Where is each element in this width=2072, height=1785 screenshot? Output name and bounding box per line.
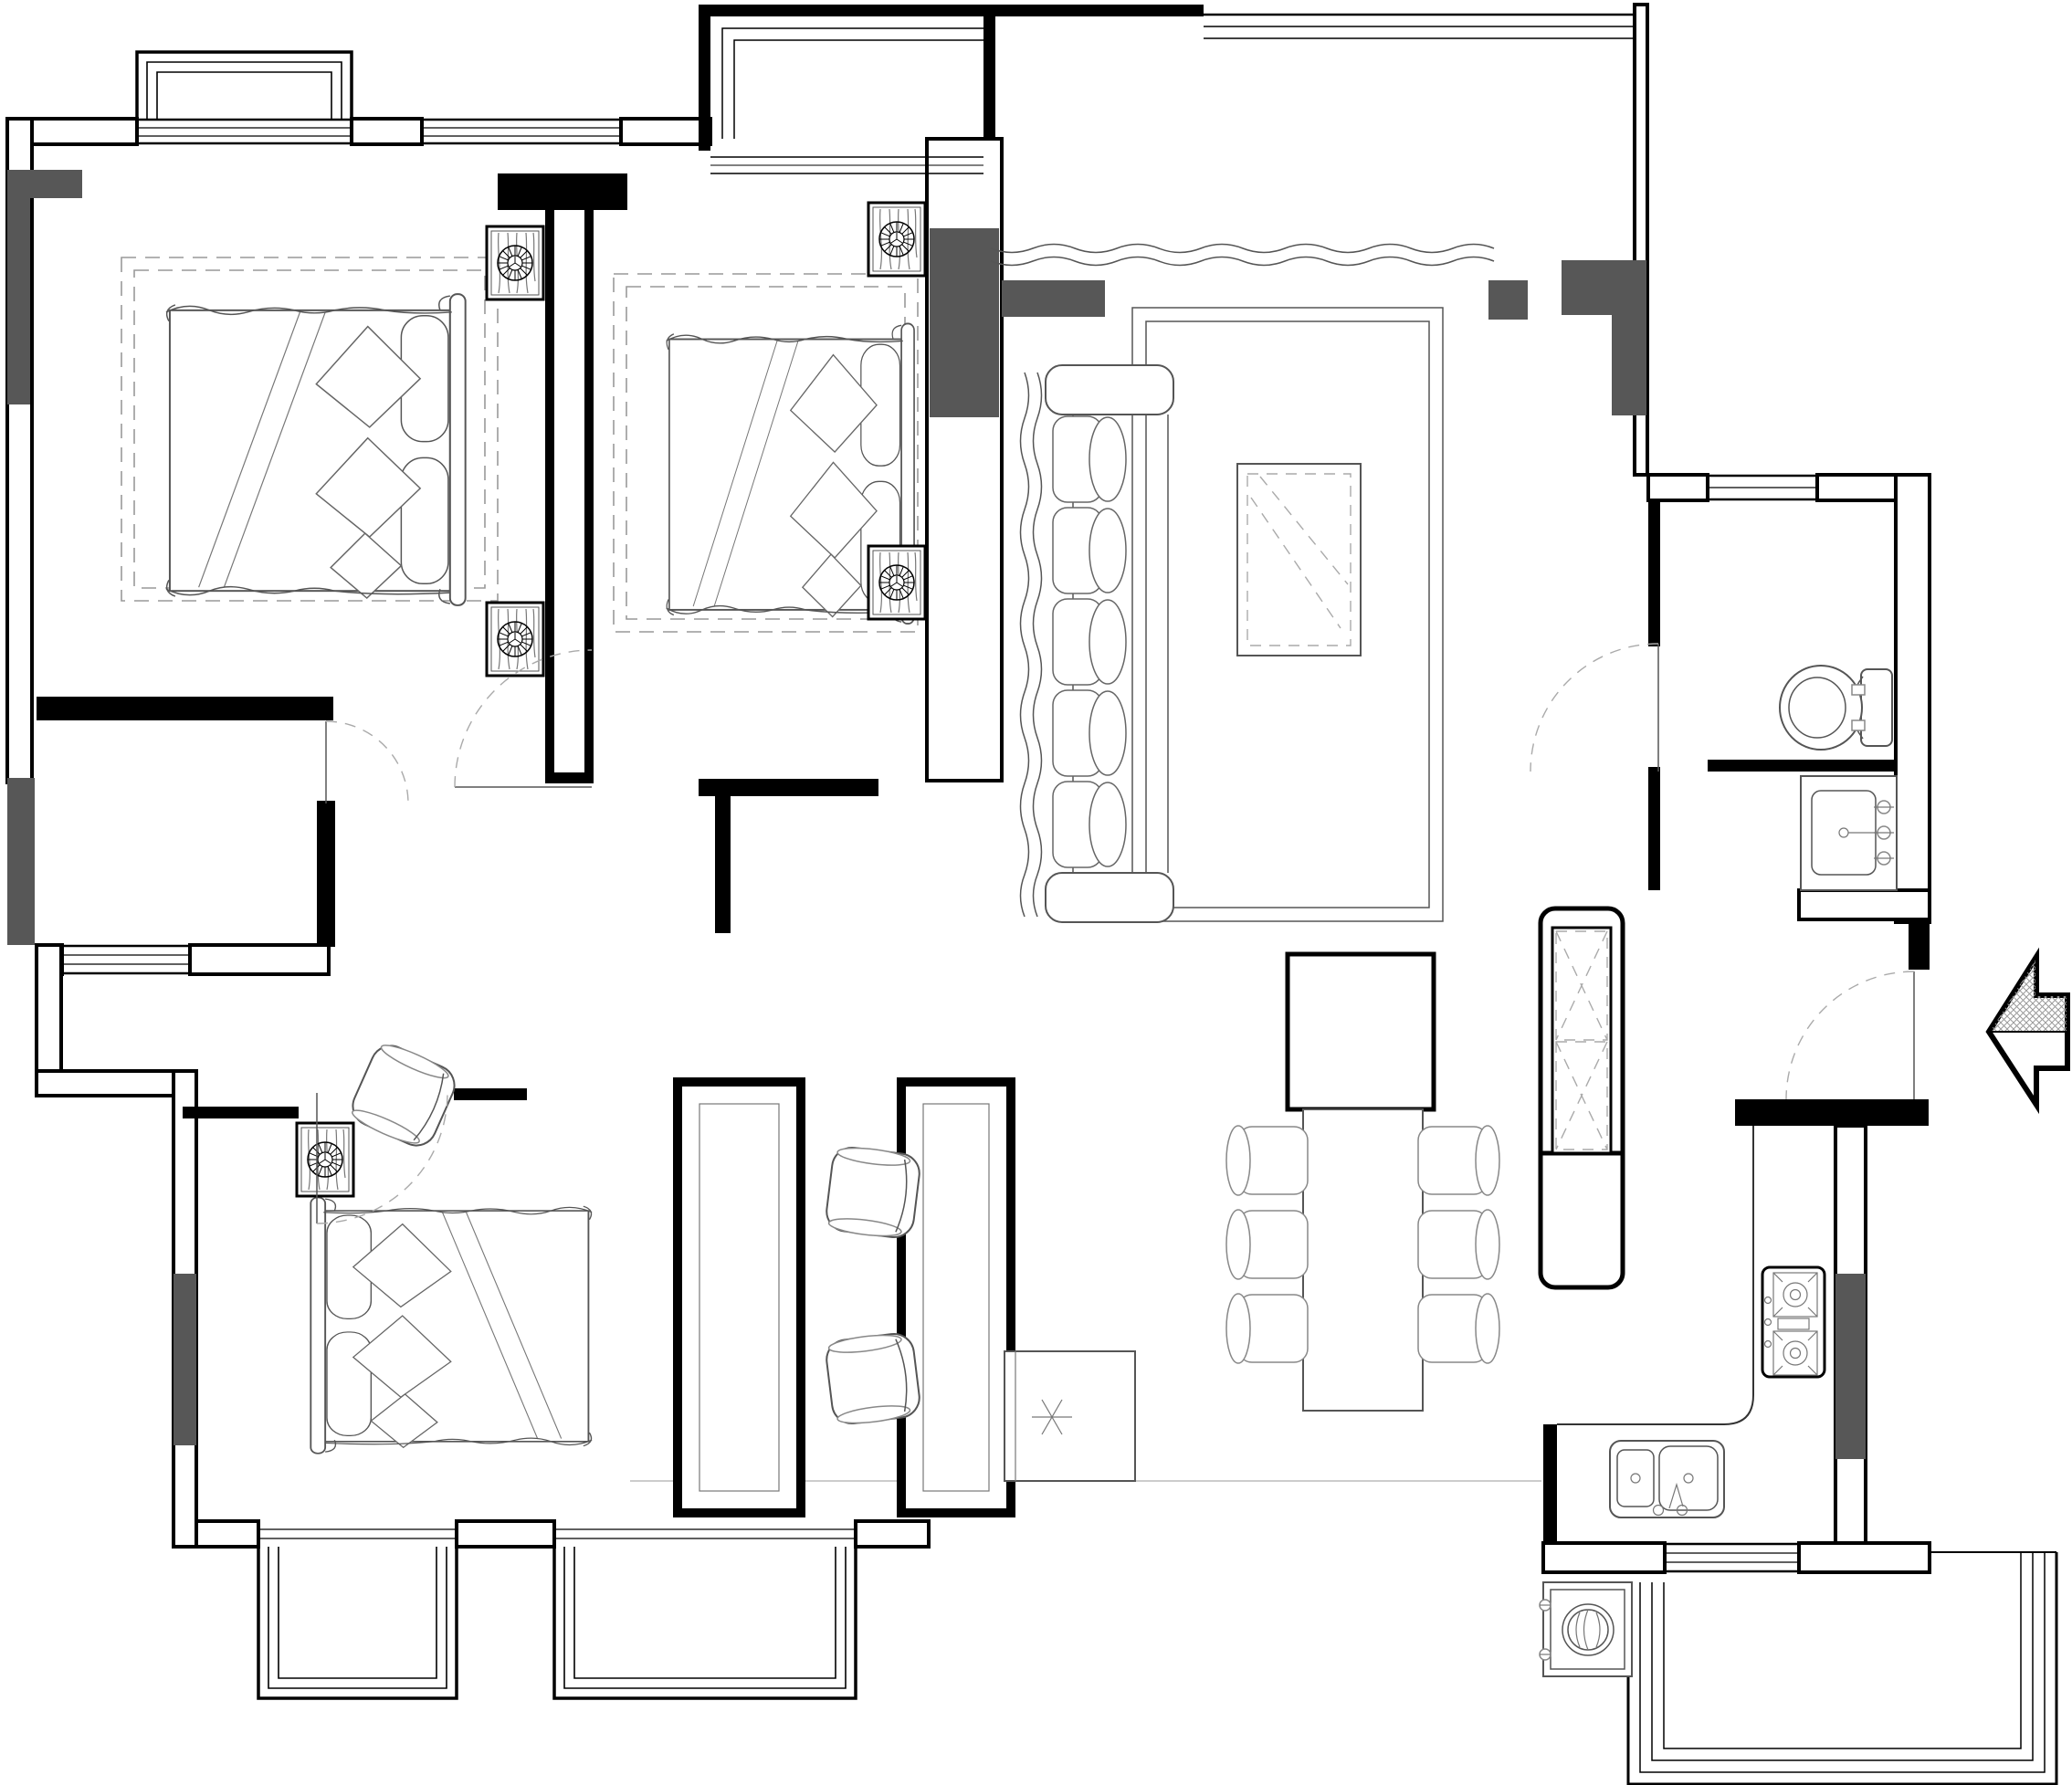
walls-solid-shape [545,772,594,783]
wall-balcony-top [699,5,1204,16]
furniture-shape [1852,720,1865,730]
wall [37,1071,183,1096]
poche [1002,280,1105,317]
closet-partition-right [901,1082,1011,1513]
dining-chair [1418,1126,1499,1195]
windows-and-railings-shape [1665,1553,1799,1562]
poche [7,778,35,945]
walls-solid-shape [1735,1099,1929,1126]
windows-and-railings-shape [258,1529,457,1538]
windows-and-railings-shape [1640,1552,2045,1772]
lounge-chair [825,1145,922,1241]
floor-plan: Apartment floor plan drawing (black and … [0,0,2072,1785]
wall [1799,1543,1930,1572]
sofa [1046,365,1173,922]
living-room-rug [1132,308,1443,921]
curtains-shape [1034,373,1042,917]
walls-solid-shape [699,5,710,151]
floor-plan-svg [0,0,2072,1785]
poche [1612,260,1646,415]
sideboard-cabinet [1288,954,1434,1109]
window-top [422,119,621,144]
lounge-chair [825,1331,922,1427]
walls-solid-shape [699,779,878,796]
window-kitchen [1665,1544,1799,1571]
windows-and-railings-shape [137,128,352,136]
wall [621,119,710,144]
walls-solid-shape [1543,1424,1557,1543]
wall [1543,1543,1665,1572]
fan-coil-unit [868,203,925,276]
walls-solid-shape [1708,760,1896,772]
bed-bedroom-1 [166,294,466,605]
walls-solid-shape [584,210,594,783]
walls-solid-shape [37,697,333,720]
furniture-shape [1852,685,1865,695]
service-balcony-railing [1628,1552,2056,1784]
windows-and-railings-shape [137,120,352,143]
curtain-living-room [991,245,1494,253]
walls-solid-shape [545,210,554,783]
fan-coil-unit [487,226,543,299]
poche [1488,280,1528,320]
armchair-bedroom-3 [346,1039,461,1153]
washing-machine [1543,1582,1632,1676]
walls-solid-shape [317,801,335,947]
ac-outdoor-unit [1004,1351,1135,1481]
bay-window-bottom-middle [554,1547,856,1698]
walls-solid-shape [1648,767,1660,890]
closet-partition-left [678,1082,801,1513]
dining-table [1303,1109,1423,1411]
wall [1799,890,1930,919]
poche [1562,260,1616,315]
gas-stove [1762,1267,1825,1377]
bay-window-bottom-left [258,1547,457,1698]
windows-and-railings-shape [62,955,190,964]
windows-and-railings-shape [422,128,621,136]
entry-arrow [1989,957,2067,1105]
curtains-shape [991,257,1494,266]
windows-and-railings-shape [554,1529,856,1538]
dining-chair [1226,1126,1308,1195]
wall [1817,475,1896,500]
poche [1835,1274,1866,1459]
walls-solid-shape [1648,500,1660,646]
poche [930,228,999,417]
wall [457,1521,554,1547]
windows-and-railings-shape [268,1547,447,1688]
walls-solid-shape [715,796,731,933]
fan-coil-unit [868,546,925,619]
fan-coil-unit [487,603,543,676]
dining-chair [1418,1210,1499,1279]
wall [352,119,422,144]
poche [174,1274,196,1445]
curtain-side [1021,373,1029,917]
dining-chair [1418,1294,1499,1363]
dining-chair [1226,1210,1308,1279]
wall [1648,475,1708,500]
windows-and-railings-shape [1204,26,1635,38]
furniture-shape [1552,928,1611,1153]
poche [7,170,82,198]
wall [1896,475,1930,922]
windows-and-railings-shape [564,1547,846,1688]
balcony-inner-line [722,28,983,139]
coffee-table [1237,464,1361,656]
door-arc-entry [1786,971,1914,1099]
walls-solid-shape [183,1107,299,1118]
window-study [62,946,190,973]
wall [190,945,329,974]
toilet [1861,669,1892,746]
walls-solid-shape [983,16,995,139]
door-arc-bathroom [1530,644,1658,772]
windows-and-railings-shape [157,72,331,119]
furniture [166,294,1897,1676]
fan-coil-unit [297,1123,353,1196]
walls-solid-shape [1909,922,1930,970]
dining-chair [1226,1294,1308,1363]
wall-header [498,173,627,210]
windows-and-railings-shape [147,62,342,119]
bed-bedroom-3 [310,1198,592,1454]
walls-solid-shape [454,1088,527,1100]
door-arc-study [326,721,408,803]
wall [196,1521,258,1547]
wall [856,1521,929,1547]
poche [7,198,30,404]
